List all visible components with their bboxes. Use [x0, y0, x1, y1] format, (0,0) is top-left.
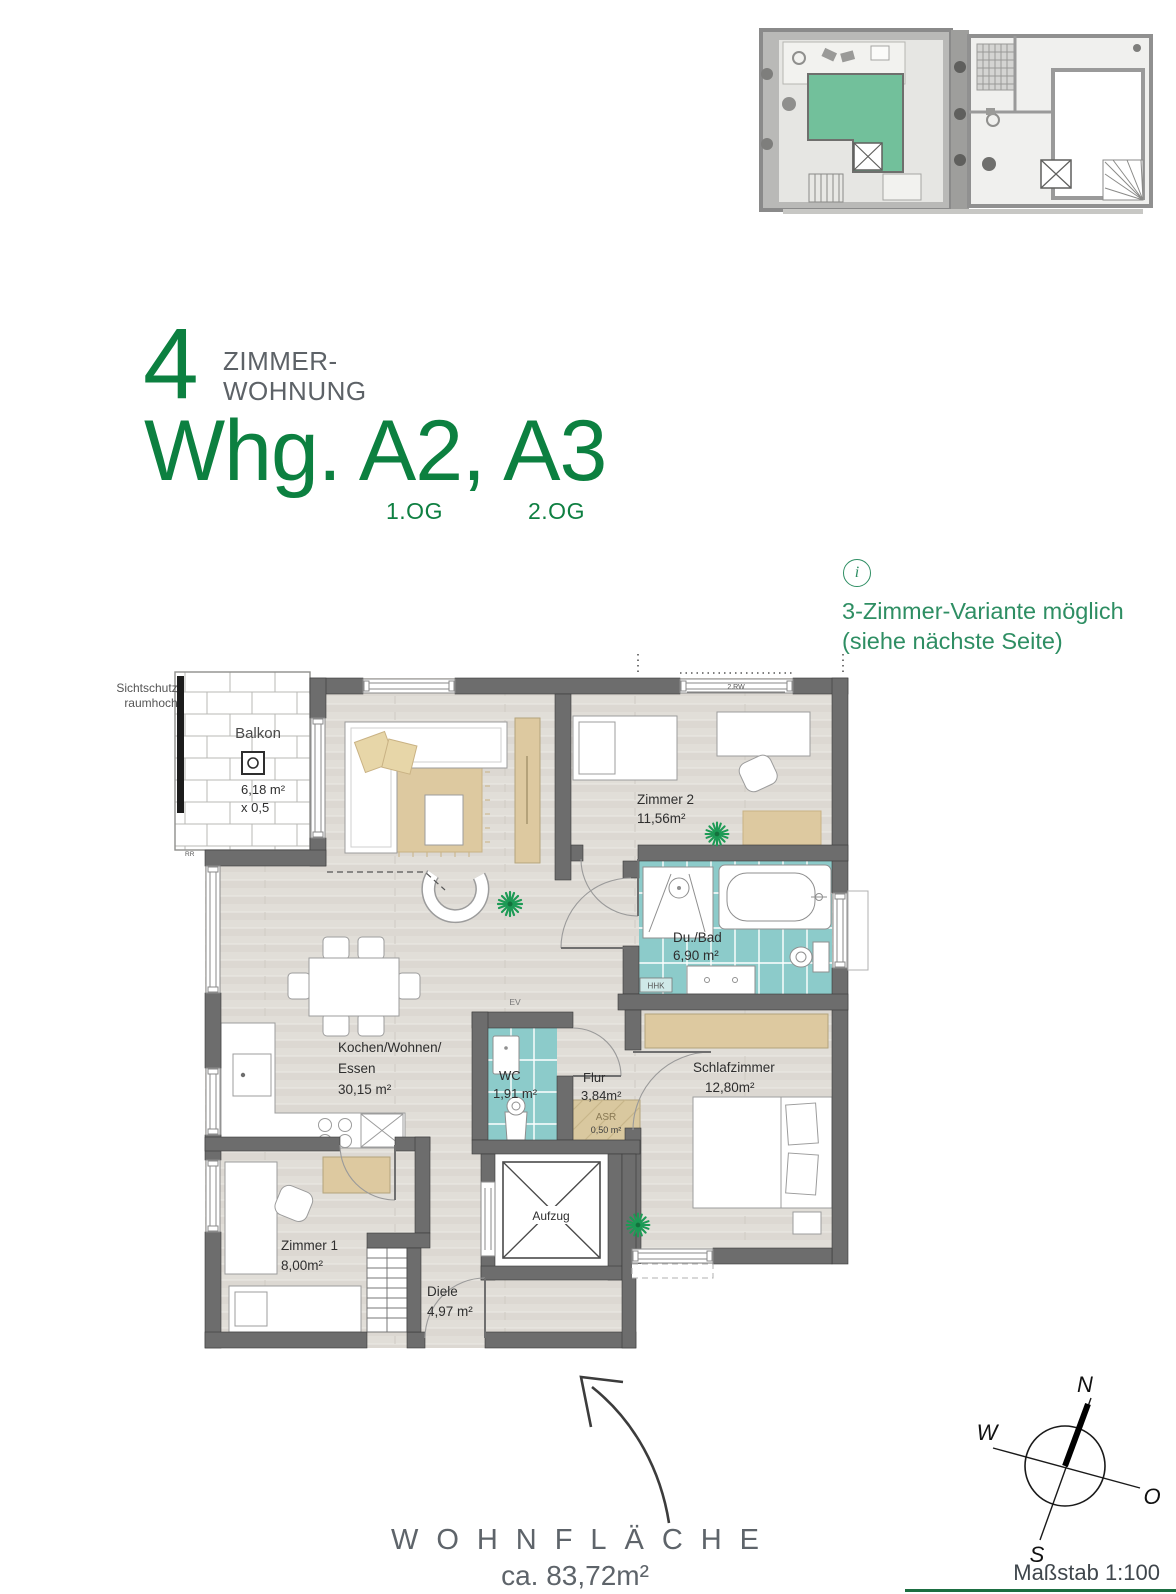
zimmer1-area: 8,00m²	[281, 1258, 324, 1273]
asr-area: 0,50 m²	[591, 1125, 622, 1135]
dining-table	[309, 958, 399, 1016]
aufzug-label: Aufzug	[532, 1209, 569, 1223]
balkon-label: Balkon	[235, 725, 281, 742]
site-plan-right-building	[969, 36, 1151, 206]
bed-pillow	[235, 1292, 267, 1326]
asr-label: ASR	[596, 1112, 617, 1123]
flur-area: 3,84m²	[581, 1088, 622, 1103]
living-area-block: WOHNFLÄCHE ca. 83,72m²	[255, 1524, 895, 1592]
zimmer1-label: Zimmer 1	[281, 1238, 338, 1253]
wardrobe	[645, 1014, 828, 1048]
balkon-area: 6,18 m²	[241, 782, 286, 797]
dresser	[323, 1157, 390, 1193]
floor-plan: HHK Sichtschutz raumhoch Balkon 6,18 m² …	[95, 648, 885, 1358]
compass-needle	[1065, 1404, 1088, 1466]
site-plan-courtyard-strip	[951, 30, 969, 210]
sichtschutz-label-1: Sichtschutz	[116, 681, 177, 695]
apartment-type-line1: ZIMMER-	[223, 346, 367, 376]
apartment-type-line2: WOHNUNG	[223, 376, 367, 406]
hhk-badge: HHK	[640, 978, 672, 992]
floor-label-a2: 1.OG	[386, 498, 443, 525]
kitchen-appliance	[233, 1054, 271, 1096]
info-icon: i	[843, 559, 871, 587]
balcony-door-window	[363, 679, 455, 693]
compass-n: N	[1077, 1372, 1093, 1397]
sichtschutz-label-2: raumhoch	[124, 696, 177, 710]
coffee-table	[425, 795, 463, 845]
zimmer1-window	[206, 1160, 220, 1232]
bad-area: 6,90 m²	[673, 948, 719, 963]
variant-note-line1: 3-Zimmer-Variante möglich	[842, 596, 1124, 626]
compass-o: O	[1143, 1484, 1160, 1509]
balcony-drain-icon	[242, 752, 264, 774]
bad-label: Du./Bad	[673, 930, 722, 945]
bed-pillow	[579, 722, 615, 774]
wohnen-area: 30,15 m²	[338, 1082, 392, 1097]
variant-note: 3-Zimmer-Variante möglich (siehe nächste…	[842, 596, 1124, 656]
ev-label: EV	[509, 997, 521, 1007]
entrance-arrow	[540, 1330, 720, 1540]
footer-rule	[905, 1589, 1176, 1592]
apartment-type-label: ZIMMER- WOHNUNG	[223, 346, 367, 406]
desk	[225, 1162, 277, 1274]
schlafzimmer-area: 12,80m²	[705, 1080, 755, 1095]
living-area-label: WOHNFLÄCHE	[255, 1524, 895, 1557]
desk	[717, 712, 810, 756]
site-plan	[753, 12, 1163, 218]
zimmer2-label: Zimmer 2	[637, 792, 694, 807]
schlafzimmer-window	[632, 1249, 713, 1278]
rug	[743, 811, 821, 845]
rw-label: 2.RW	[727, 684, 745, 691]
scale-label: Maßstab 1:100	[940, 1560, 1160, 1586]
stairs-strip	[367, 1248, 407, 1332]
wohnen-label-1: Kochen/Wohnen/	[338, 1040, 442, 1055]
compass-w: W	[977, 1420, 1000, 1445]
page-title: Whg. A2, A3	[144, 408, 606, 494]
kitchen-window	[206, 1068, 220, 1135]
zimmer2-area: 11,56m²	[637, 811, 686, 826]
flur-label: Flur	[583, 1070, 606, 1085]
living-area-value: ca. 83,72m²	[255, 1560, 895, 1592]
elevator-door	[481, 1182, 495, 1256]
bed-pillow	[786, 1103, 819, 1145]
rr-label: RR	[185, 851, 195, 858]
nightstand	[793, 1212, 821, 1234]
wohnen-label-2: Essen	[338, 1061, 376, 1076]
bathroom-window	[833, 891, 868, 970]
balcony	[175, 672, 310, 850]
diele-area: 4,97 m²	[427, 1304, 473, 1319]
living-room-window	[311, 718, 325, 838]
vanity	[687, 966, 755, 994]
privacy-screen	[177, 676, 184, 813]
bed-pillow	[786, 1153, 819, 1195]
room-count-number: 4	[143, 322, 199, 407]
site-plan-shadow	[783, 209, 1143, 214]
balkon-factor: x 0,5	[241, 800, 269, 815]
wc-label: WC	[499, 1068, 521, 1083]
diele-label: Diele	[427, 1284, 458, 1299]
site-plan-left-building	[761, 30, 951, 210]
compass: N W O S	[955, 1368, 1175, 1578]
floor-label-a3: 2.OG	[528, 498, 585, 525]
wc-toilet	[505, 1097, 527, 1140]
svg-text:HHK: HHK	[648, 982, 666, 991]
schlafzimmer-label: Schlafzimmer	[693, 1060, 775, 1075]
sofa-pillow	[382, 739, 417, 774]
wc-area: 1,91 m²	[493, 1086, 538, 1101]
dining-window	[206, 866, 220, 993]
